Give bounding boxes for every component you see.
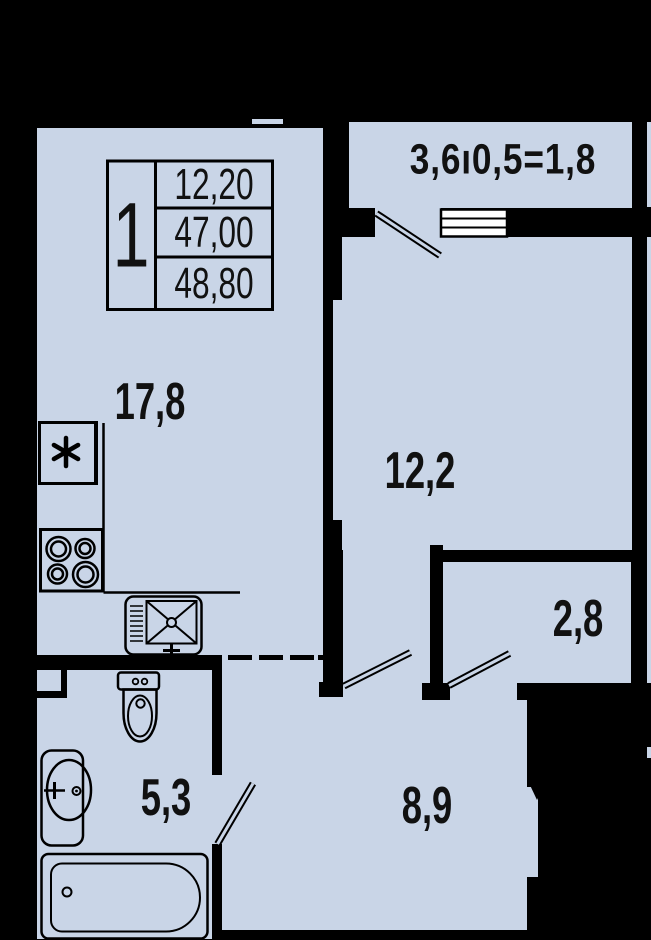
label-closet-area: 2,8 [553, 589, 604, 649]
edge-sliver-mid [647, 237, 651, 683]
bedroom-lower-part [343, 550, 430, 660]
entrance-recess [527, 787, 538, 877]
bedroom-wall-recess [333, 300, 342, 520]
edge-sliver-low [647, 747, 651, 758]
edge-sliver-top [647, 122, 651, 207]
label-living-kitchen-area: 17,8 [115, 372, 186, 432]
balcony-door-opening [375, 208, 441, 237]
label-balcony-formula: 3,6ı0,5=1,8 [410, 136, 596, 185]
table-rooms-count: 1 [113, 184, 150, 289]
label-bedroom-area: 12,2 [385, 441, 456, 501]
label-hallway-area: 8,9 [402, 776, 453, 836]
wall-niche [252, 119, 283, 124]
room-hallway [222, 655, 527, 930]
table-living-area: 12,20 [174, 160, 253, 210]
label-bathroom-area: 5,3 [141, 768, 192, 828]
table-total-area: 48,80 [174, 259, 253, 309]
floor-plan-canvas: 17,8 12,2 2,8 5,3 8,9 3,6ı0,5=1,8 1 12,2… [0, 0, 651, 940]
room-bedroom [342, 237, 632, 550]
window-icon [441, 210, 507, 237]
table-area-no-balcony: 47,00 [174, 208, 253, 258]
